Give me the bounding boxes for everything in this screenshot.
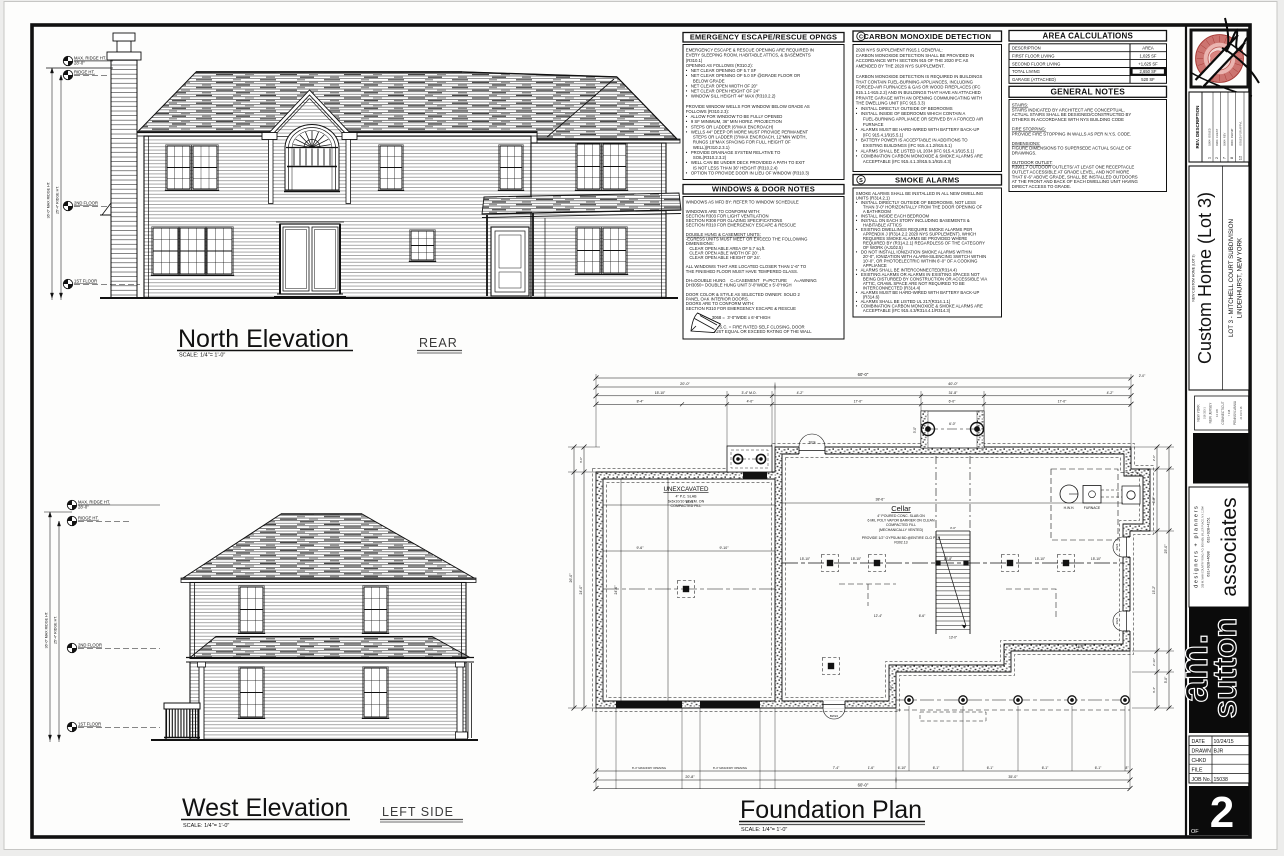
- svg-text:• ALARMS MUST BE HARD-WIRED: • ALARMS MUST BE HARD-WIRED WITH BATTERY…: [856, 127, 980, 132]
- svg-text:GENERAL NOTES: GENERAL NOTES: [1050, 87, 1125, 97]
- svg-text:RIDGE HT.: RIDGE HT.: [78, 516, 99, 521]
- svg-text:15'-2": 15'-2": [1152, 585, 1156, 594]
- svg-text:North Elevation: North Elevation: [178, 325, 349, 353]
- svg-text:26'-0": 26'-0": [569, 573, 573, 583]
- svg-text:9'-6": 9'-6": [637, 546, 645, 550]
- svg-text:WINDOWS & DOOR NOTES: WINDOWS & DOOR NOTES: [712, 184, 815, 193]
- svg-text:7 318: 7 318: [1227, 409, 1231, 416]
- svg-text:DRAWN: DRAWN: [1192, 749, 1212, 755]
- svg-text:6'-0": 6'-0": [949, 422, 957, 426]
- svg-text:• INSTALL DIRECTLY OUTSIDE O: • INSTALL DIRECTLY OUTSIDE OF BEDROOMS: [856, 106, 953, 111]
- svg-text:ACCEPTABLE (IFC 915.4.1.3/915.: ACCEPTABLE (IFC 915.4.1.3/915.5.1/915.4.…: [856, 159, 952, 164]
- svg-text:631+928+4698 631+928+41: 631+928+4698 631+928+4151: [1207, 517, 1211, 577]
- svg-text:EMERGENCY ESCAPE/RESCUE OPNGS: EMERGENCY ESCAPE/RESCUE OPNGS: [690, 32, 837, 41]
- svg-text:8'-4" MASONRY OPENING: 8'-4" MASONRY OPENING: [713, 766, 747, 770]
- svg-text:SECTION R310 FOR EMERGENCY ESC: SECTION R310 FOR EMERGENCY ESCAPE & RESC…: [686, 223, 796, 228]
- svg-text:CHKD: CHKD: [1192, 758, 1207, 764]
- svg-text:• BATTERY POWER IS ACCEPTABL: • BATTERY POWER IS ACCEPTABLE IN ADDITIO…: [856, 138, 968, 143]
- svg-text:LOT 3 - MITCHELL COURT SUBDIVI: LOT 3 - MITCHELL COURT SUBDIVISION: [1228, 219, 1235, 337]
- svg-text:520 SF: 520 SF: [1141, 77, 1155, 82]
- svg-text:West Elevation: West Elevation: [182, 794, 348, 822]
- svg-text:sutton: sutton: [1206, 618, 1243, 719]
- svg-text:17'-0": 17'-0": [1058, 400, 1067, 404]
- svg-text:PROVIDE FIRE STOPPING IN WALLS: PROVIDE FIRE STOPPING IN WALLS AS PER N.…: [1012, 131, 1131, 136]
- svg-text:• COMBINATION CARBON MONOXID: • COMBINATION CARBON MONOXIDE & SMOKE AL…: [856, 154, 983, 159]
- svg-text:SECTION R310 FOR EMERGENCY ESC: SECTION R310 FOR EMERGENCY ESCAPE & RESC…: [686, 306, 796, 311]
- svg-text:• OPTION TO PROVIDE DOOR IN: • OPTION TO PROVIDE DOOR IN LIEU OF WIND…: [686, 170, 810, 175]
- svg-text:EVERY SLEEPING ROOM, HABITABLE: EVERY SLEEPING ROOM, HABITABLE ATTICS, &…: [686, 53, 811, 58]
- svg-text:2'-10": 2'-10": [1152, 658, 1156, 666]
- svg-text:LINDENHURST, NEW YORK: LINDENHURST, NEW YORK: [1237, 237, 1244, 318]
- svg-text:+1,625 SF: +1,625 SF: [1138, 61, 1158, 66]
- svg-text:JOB No.: JOB No.: [1192, 777, 1212, 783]
- svg-text:15'-8": 15'-8": [944, 557, 953, 561]
- svg-text:1'-6": 1'-6": [868, 766, 875, 770]
- svg-text:2'-0": 2'-0": [1152, 455, 1156, 461]
- svg-text:25'-0": 25'-0": [1164, 544, 1168, 554]
- svg-text:4" POURED CONC. SLAB ON: 4" POURED CONC. SLAB ON: [877, 514, 925, 518]
- svg-text:WINDOWS AS MFD BY: REFER TO WI: WINDOWS AS MFD BY: REFER TO WINDOW SCHED…: [686, 200, 799, 205]
- svg-text:03/04 CLIENT: 03/04 CLIENT: [1215, 128, 1219, 146]
- svg-text:associates: associates: [1218, 497, 1241, 596]
- svg-text:915.1.1-915.2.2) AND IN BUILDI: 915.1.1-915.2.2) AND IN BUILDINGS THAT H…: [856, 90, 981, 95]
- svg-text:02/04 ISSUED: 02/04 ISSUED: [1208, 128, 1212, 146]
- svg-text:14 105: 14 105: [1215, 408, 1219, 416]
- svg-text:18'-4": 18'-4": [686, 500, 696, 504]
- svg-text:1,025 SF: 1,025 SF: [1140, 53, 1157, 58]
- svg-text:3'-4": 3'-4": [1152, 687, 1156, 693]
- svg-text:7'-4": 7'-4": [833, 766, 840, 770]
- svg-text:DIRECT ACCESS TO GRADE.: DIRECT ACCESS TO GRADE.: [1012, 184, 1071, 189]
- svg-text:GARAGE (ATTACHED): GARAGE (ATTACHED): [1012, 77, 1056, 82]
- svg-text:FURNACE: FURNACE: [1084, 506, 1101, 510]
- svg-text:OTHERS IN ACCORDANCE WITH NYS: OTHERS IN ACCORDANCE WITH NYS BUILDING C…: [1012, 117, 1124, 122]
- svg-text:(MECHANICALLY VENTED): (MECHANICALLY VENTED): [879, 528, 923, 532]
- svg-text:20'-8": 20'-8": [685, 775, 695, 779]
- svg-text:EXISTING BUILDINGS (IFC 915.4.: EXISTING BUILDINGS (IFC 915.4.1.2/915.5.…: [856, 143, 953, 148]
- svg-text:10/24/15: 10/24/15: [1214, 739, 1234, 745]
- svg-text:SCALE: 1/4"= 1'-0": SCALE: 1/4"= 1'-0": [179, 353, 225, 359]
- svg-text:15038: 15038: [1214, 777, 1229, 783]
- svg-text:25'-4" RIDGE HT.: 25'-4" RIDGE HT.: [54, 616, 58, 644]
- svg-text:1ST FLOOR: 1ST FLOOR: [78, 722, 101, 727]
- svg-text:NEW YORK: NEW YORK: [1197, 403, 1201, 421]
- svg-text:8'-2": 8'-2": [1152, 496, 1156, 503]
- svg-text:THAT CONTAIN FUEL-BURNING APPL: THAT CONTAIN FUEL-BURNING APPLIANCES, IN…: [856, 79, 973, 84]
- svg-text:UNEXCAVATED: UNEXCAVATED: [663, 486, 709, 493]
- svg-text:25'-4" RIDGE HT.: 25'-4" RIDGE HT.: [56, 186, 60, 214]
- svg-text:6'-10": 6'-10": [898, 766, 907, 770]
- svg-text:THE FINISHED FLOOR MUST HAVE T: THE FINISHED FLOOR MUST HAVE TEMPERED GL…: [686, 269, 798, 274]
- svg-text:NEW JERSEY: NEW JERSEY: [1209, 402, 1213, 424]
- svg-text:SCALE: 1/4"= 1'-0": SCALE: 1/4"= 1'-0": [741, 827, 787, 833]
- svg-text:H.W.H.: H.W.H.: [1064, 506, 1075, 510]
- svg-text:AREA CALCULATIONS: AREA CALCULATIONS: [1042, 31, 1133, 40]
- svg-text:20'-0": 20'-0": [680, 382, 690, 386]
- svg-text:BJR: BJR: [1214, 749, 1224, 755]
- svg-text:DRAWINGS.: DRAWINGS.: [1012, 150, 1037, 155]
- svg-text:CARBON MONOXIDE DETECTION: CARBON MONOXIDE DETECTION: [863, 32, 991, 41]
- svg-text:17'-0": 17'-0": [854, 400, 863, 404]
- svg-text:5'-8": 5'-8": [1164, 676, 1168, 683]
- svg-text:06/04 PERMIT: 06/04 PERMIT: [1230, 128, 1234, 146]
- svg-text:3'-4" M.O.: 3'-4" M.O.: [741, 391, 756, 395]
- svg-text:FILE: FILE: [1192, 767, 1203, 773]
- svg-text:CARBON MONOXIDE DETECTION SHAL: CARBON MONOXIDE DETECTION SHALL BE PROVI…: [856, 53, 974, 58]
- svg-text:15'-10": 15'-10": [800, 557, 811, 561]
- svg-text:40'-0": 40'-0": [948, 382, 958, 386]
- svg-text:CLEAR OPEN ABLE HEIGHT OF 24'.: CLEAR OPEN ABLE HEIGHT OF 24'.: [686, 255, 761, 260]
- svg-text:4'-0": 4'-0": [747, 400, 755, 404]
- svg-text:SECOND FLOOR LIVING: SECOND FLOOR LIVING: [1012, 61, 1060, 66]
- svg-text:DESCRIPTION: DESCRIPTION: [1012, 46, 1041, 51]
- svg-text:4'-0": 4'-0": [889, 685, 893, 691]
- svg-text:Foundation Plan: Foundation Plan: [740, 796, 922, 824]
- svg-text:36'-0" MAX RIDGE HT.: 36'-0" MAX RIDGE HT.: [45, 611, 49, 648]
- svg-text:ACCORDANCE WITH SECTION 915 OF: ACCORDANCE WITH SECTION 915 OF THE 2020 …: [856, 58, 969, 63]
- svg-text:8'-4" MASONRY OPENING: 8'-4" MASONRY OPENING: [632, 766, 666, 770]
- svg-text:21 1973 16: 21 1973 16: [1239, 406, 1243, 420]
- svg-text:12'-4": 12'-4": [874, 614, 883, 618]
- svg-text:AMENDED BY THE 2020 NYS SUPPLE: AMENDED BY THE 2020 NYS SUPPLEMENT.: [856, 63, 945, 68]
- svg-text:S: S: [859, 178, 863, 184]
- svg-text:2,650 SF: 2,650 SF: [1140, 69, 1157, 74]
- svg-text:BW24: BW24: [830, 714, 839, 718]
- svg-text:3'-0": 3'-0": [913, 427, 917, 433]
- svg-text:ACCEPTABLE (IFC 915.4.3/R314.4: ACCEPTABLE (IFC 915.4.3/R314.4.1/R314.3): [856, 308, 951, 313]
- svg-text:R302.13: R302.13: [894, 541, 907, 545]
- svg-text:6'-1": 6'-1": [1095, 766, 1102, 770]
- svg-text:PROVIDE 1/2" GYPSUM BD @ENTIRE: PROVIDE 1/2" GYPSUM BD @ENTIRE CLG PER: [862, 536, 941, 540]
- svg-text:35'-0": 35'-0": [1008, 775, 1018, 779]
- svg-text:2ND FLOOR: 2ND FLOOR: [74, 201, 98, 206]
- svg-text:• WINDOW SILL HEIGHT 44" MAX: • WINDOW SILL HEIGHT 44" MAX (R310.2.2): [686, 94, 776, 99]
- svg-text:Cellar: Cellar: [891, 504, 911, 513]
- svg-text:SCALE: 1/4"= 1'-0": SCALE: 1/4"= 1'-0": [183, 823, 229, 829]
- svg-text:6'-0": 6'-0": [949, 400, 957, 404]
- svg-text:3'-0": 3'-0": [579, 457, 583, 463]
- svg-text:60'-0": 60'-0": [858, 372, 869, 377]
- svg-text:AREA: AREA: [1142, 46, 1154, 51]
- svg-text:8'-4": 8'-4": [637, 400, 645, 404]
- svg-text:6'-6": 6'-6": [919, 614, 926, 618]
- svg-text:(IFC 915.4.1/915.5.1): (IFC 915.4.1/915.5.1): [856, 132, 904, 137]
- svg-text:REV. DESCRIPTION: REV. DESCRIPTION: [1195, 105, 1200, 149]
- svg-text:PENNSYLVANIA: PENNSYLVANIA: [1233, 400, 1237, 425]
- svg-text:4'-2": 4'-2": [797, 391, 805, 395]
- svg-text:516 333-1: 516 333-1: [1203, 407, 1207, 419]
- svg-text:38'-6": 38'-6": [876, 498, 886, 502]
- svg-text:DH3050= DOUBLE HUNG UNIT 3'-0": DH3050= DOUBLE HUNG UNIT 3'-0"WIDE x 5'-…: [686, 283, 792, 288]
- svg-text:COMPACTED FILL: COMPACTED FILL: [671, 504, 702, 508]
- svg-text:15'-10": 15'-10": [1091, 557, 1102, 561]
- svg-text:31'-8": 31'-8": [949, 391, 958, 395]
- svg-text:1ST FLOOR: 1ST FLOOR: [74, 279, 97, 284]
- svg-text:3024: 3024: [808, 441, 815, 445]
- svg-text:CARBON MONOXIDE DETECTION IS R: CARBON MONOXIDE DETECTION IS REQUIRED IN…: [856, 74, 983, 79]
- svg-text:• ALARMS SHALL BE LISTED UL: • ALARMS SHALL BE LISTED UL 2034 (IFC 91…: [856, 148, 975, 153]
- svg-text:6'-1": 6'-1": [1042, 766, 1049, 770]
- svg-text:PRIVATE GARAGE WITH AN OPENING: PRIVATE GARAGE WITH AN OPENING COMMUNICA…: [856, 95, 982, 100]
- svg-text:COMPACTED FILL: COMPACTED FILL: [886, 523, 916, 527]
- svg-text:4" P.C. SLAB: 4" P.C. SLAB: [676, 495, 698, 499]
- svg-text:24'-0": 24'-0": [579, 585, 583, 595]
- svg-text:12: 12: [1238, 155, 1243, 160]
- svg-text:3'-0": 3'-0": [950, 526, 956, 530]
- svg-text:TOTAL LIVING: TOTAL LIVING: [1012, 69, 1040, 74]
- svg-text:3024: 3024: [1115, 543, 1119, 550]
- svg-text:2020 NYS SUPPLEMENT R915.1 GEN: 2020 NYS SUPPLEMENT R915.1 GENERAL:: [856, 48, 943, 53]
- svg-text:3024: 3024: [1115, 617, 1119, 624]
- svg-text:6'-1": 6'-1": [933, 766, 940, 770]
- svg-text:CONNECTICUT: CONNECTICUT: [1221, 401, 1225, 424]
- svg-text:REAR: REAR: [419, 336, 458, 350]
- svg-text:2ND FLOOR: 2ND FLOOR: [78, 643, 102, 648]
- svg-text:36'-0" MAX RIDGE HT.: 36'-0" MAX RIDGE HT.: [47, 181, 51, 218]
- svg-text:4'-2": 4'-2": [1107, 391, 1115, 395]
- svg-text:THE DWELLING UNIT (IFC 915.3.3: THE DWELLING UNIT (IFC 915.3.3): [856, 101, 926, 106]
- svg-text:15'-10": 15'-10": [1035, 557, 1046, 561]
- svg-text:FORCED-AIR FURNACES & GAS OR W: FORCED-AIR FURNACES & GAS OR WOOD FIREPL…: [856, 85, 981, 90]
- svg-text:9'-10": 9'-10": [720, 546, 730, 550]
- svg-text:15'-10": 15'-10": [851, 557, 862, 561]
- svg-text:05/04 REV: 05/04 REV: [1223, 132, 1227, 146]
- svg-text:• INSTALL INSIDE OF BEDROOMS: • INSTALL INSIDE OF BEDROOMS WHICH CONTA…: [856, 111, 966, 116]
- svg-text:Custom Home (Lot 3): Custom Home (Lot 3): [1195, 192, 1215, 364]
- svg-text:18'-4": 18'-4": [1076, 645, 1085, 649]
- svg-text:ISSUED FOR APPVL: ISSUED FOR APPVL: [1239, 121, 1243, 146]
- svg-text:DATE: DATE: [1192, 739, 1206, 745]
- svg-text:2: 2: [1210, 788, 1234, 837]
- svg-text:6'-1": 6'-1": [987, 766, 994, 770]
- svg-text:60'-0": 60'-0": [858, 783, 869, 788]
- svg-text:OF: OF: [1191, 829, 1199, 835]
- svg-text:6 MIL POLY VAPOR BARRIER ON CL: 6 MIL POLY VAPOR BARRIER ON CLEAN: [868, 519, 935, 523]
- svg-text:15'-10": 15'-10": [655, 391, 666, 395]
- svg-text:RIDGE HT.: RIDGE HT.: [74, 70, 95, 75]
- svg-text:FUEL-BURNING APPLIANCE OR SERV: FUEL-BURNING APPLIANCE OR SERVED BY A FO…: [856, 116, 983, 121]
- svg-text:LEFT SIDE: LEFT SIDE: [382, 805, 454, 819]
- svg-text:FURNACE: FURNACE: [856, 122, 884, 127]
- svg-text:FIRST FLOOR LIVING: FIRST FLOOR LIVING: [1012, 53, 1055, 58]
- svg-text:13'-0": 13'-0": [949, 636, 957, 640]
- svg-text:2'-0": 2'-0": [1139, 374, 1146, 378]
- svg-text:205 W. MAIN COUNTRY ROAD, P.O.: 205 W. MAIN COUNTRY ROAD, P.O. BOX 606, …: [1202, 506, 1205, 588]
- svg-text:d e s i g n e r s + p l a: d e s i g n e r s + p l a n n e r s: [1194, 506, 1200, 588]
- svg-text:24'-6": 24'-6": [614, 585, 618, 595]
- svg-text:SMOKE ALARMS: SMOKE ALARMS: [895, 175, 960, 184]
